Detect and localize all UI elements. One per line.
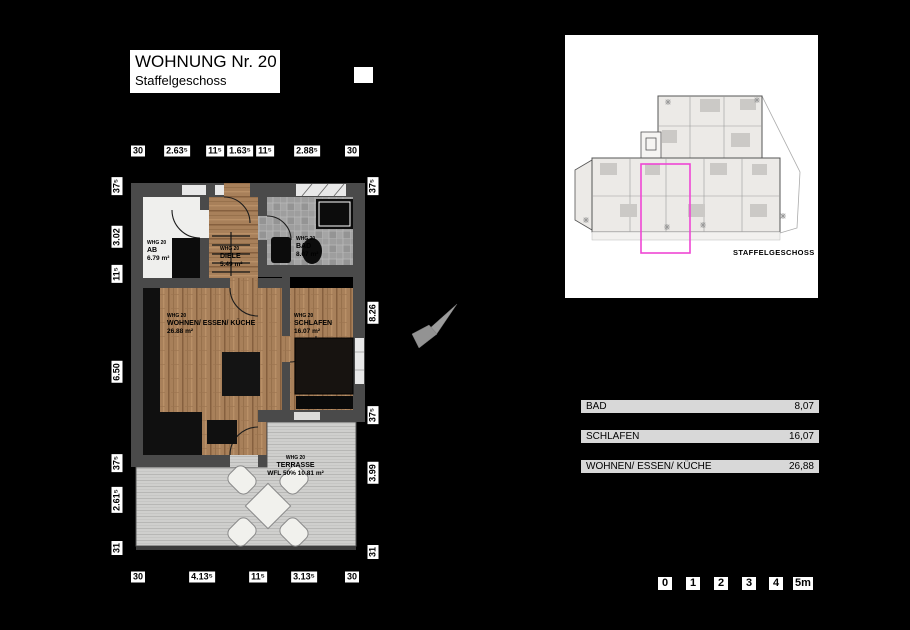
dim-label: 6.50 (112, 361, 123, 383)
page-title: WOHNUNG Nr. 20 (135, 52, 280, 72)
dim-label: 37⁵ (368, 406, 379, 424)
dim-label: 31 (112, 541, 123, 555)
dim-label: 11⁵ (249, 572, 267, 583)
page-subtitle: Staffelgeschoss (135, 73, 280, 89)
dim-label: 37⁵ (112, 454, 123, 472)
drawing-canvas (0, 0, 910, 630)
room-whg: WHG 20 (147, 241, 169, 247)
dim-label: 30 (345, 146, 359, 157)
room-name: BAD (296, 243, 318, 251)
kitchen-counter (143, 288, 160, 455)
dim-label: 11⁵ (112, 265, 123, 283)
dim-label: 2.61⁵ (112, 487, 123, 513)
dim-label: 1.63⁵ (227, 146, 253, 157)
sink (271, 237, 291, 263)
room-area: 5.49 m² (220, 261, 242, 268)
area-table-value: 16,07 (789, 431, 814, 442)
dim-label: 30 (131, 146, 145, 157)
room-label-terrasse: WHG 20 TERRASSE WFL 50% 10.81 m² (248, 456, 343, 477)
overview-panel (565, 35, 818, 298)
dim-label: 3.02 (112, 226, 123, 248)
overview-caption: STAFFELGESCHOSS (733, 248, 811, 257)
scale-label: 5m (793, 577, 813, 590)
dining-table (222, 352, 260, 396)
dim-label: 2.88⁵ (294, 146, 320, 157)
room-area: WFL 50% 10.81 m² (248, 470, 343, 477)
scale-label: 3 (742, 577, 756, 590)
area-table-label: BAD (586, 401, 607, 412)
dim-label: 4.13⁵ (189, 572, 215, 583)
room-label-bad: WHG 20 BAD 8.07 m² (296, 237, 318, 258)
north-arrow-icon (412, 304, 457, 348)
room-area: 6.79 m² (147, 255, 169, 262)
shower (316, 199, 353, 229)
room-name: DIELE (220, 253, 242, 261)
scale-label: 2 (714, 577, 728, 590)
dim-label: 37⁵ (112, 177, 123, 195)
room-name: AB (147, 247, 169, 255)
room-name: SCHLAFEN (294, 320, 332, 328)
terrace-edge (136, 546, 356, 550)
dim-label: 30 (345, 572, 359, 583)
room-whg: WHG 20 (296, 237, 318, 243)
dim-label: 8.26 (368, 302, 379, 324)
room-label-diele: WHG 20 DIELE 5.49 m² (220, 247, 242, 268)
area-table-value: 8,07 (795, 401, 814, 412)
marker-box (354, 67, 373, 83)
kitchen-block (160, 412, 202, 455)
room-name: WOHNEN/ ESSEN/ KÜCHE (167, 320, 255, 328)
scale-label: 4 (769, 577, 783, 590)
area-table-row: BAD 8,07 (581, 400, 819, 416)
dim-label: 11⁵ (256, 146, 274, 157)
area-table-value: 26,88 (789, 461, 814, 472)
room-label-wohnen: WHG 20 WOHNEN/ ESSEN/ KÜCHE 26.88 m² (167, 314, 255, 335)
floor-plan (131, 183, 365, 550)
kitchen-island (207, 420, 237, 444)
room-name: TERRASSE (248, 462, 343, 470)
room-label-schlafen: WHG 20 SCHLAFEN 16.07 m² (294, 314, 332, 335)
area-table-row: WOHNEN/ ESSEN/ KÜCHE 26,88 (581, 460, 819, 476)
dim-label: 11⁵ (206, 146, 224, 157)
ab-appliance (172, 238, 200, 278)
room-whg: WHG 20 (220, 247, 242, 253)
area-table-label: SCHLAFEN (586, 431, 639, 442)
area-table-label: WOHNEN/ ESSEN/ KÜCHE (586, 461, 712, 472)
dim-label: 37⁵ (368, 177, 379, 195)
wardrobe (296, 396, 353, 409)
bed (295, 338, 353, 394)
room-area: 16.07 m² (294, 328, 332, 335)
scale-label: 1 (686, 577, 700, 590)
area-table-row: SCHLAFEN 16,07 (581, 430, 819, 446)
room-label-ab: WHG 20 AB 6.79 m² (147, 241, 169, 262)
dim-label: 3.99 (368, 462, 379, 484)
title-block: WOHNUNG Nr. 20 Staffelgeschoss (130, 50, 280, 93)
room-area: 26.88 m² (167, 328, 255, 335)
room-area: 8.07 m² (296, 251, 318, 258)
dim-label: 30 (131, 572, 145, 583)
dim-label: 2.63⁵ (164, 146, 190, 157)
dim-label: 31 (368, 545, 379, 559)
dim-label: 3.13⁵ (291, 572, 317, 583)
scale-label: 0 (658, 577, 672, 590)
